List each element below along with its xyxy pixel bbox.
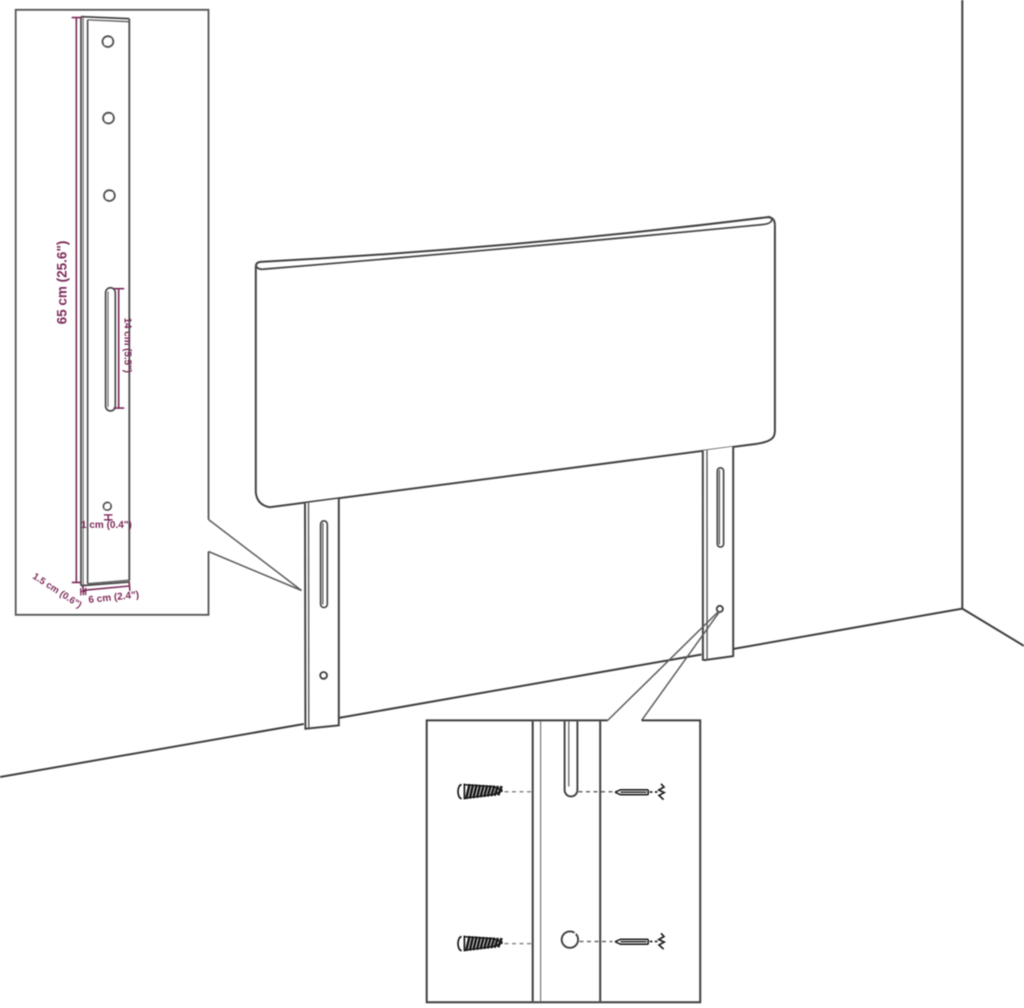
svg-text:6 cm (2.4"): 6 cm (2.4") [88, 590, 140, 606]
svg-text:1 cm (0.4"): 1 cm (0.4") [81, 520, 132, 531]
svg-text:14 cm (5.5"): 14 cm (5.5") [122, 318, 133, 373]
svg-text:65 cm (25.6"): 65 cm (25.6") [55, 241, 70, 325]
